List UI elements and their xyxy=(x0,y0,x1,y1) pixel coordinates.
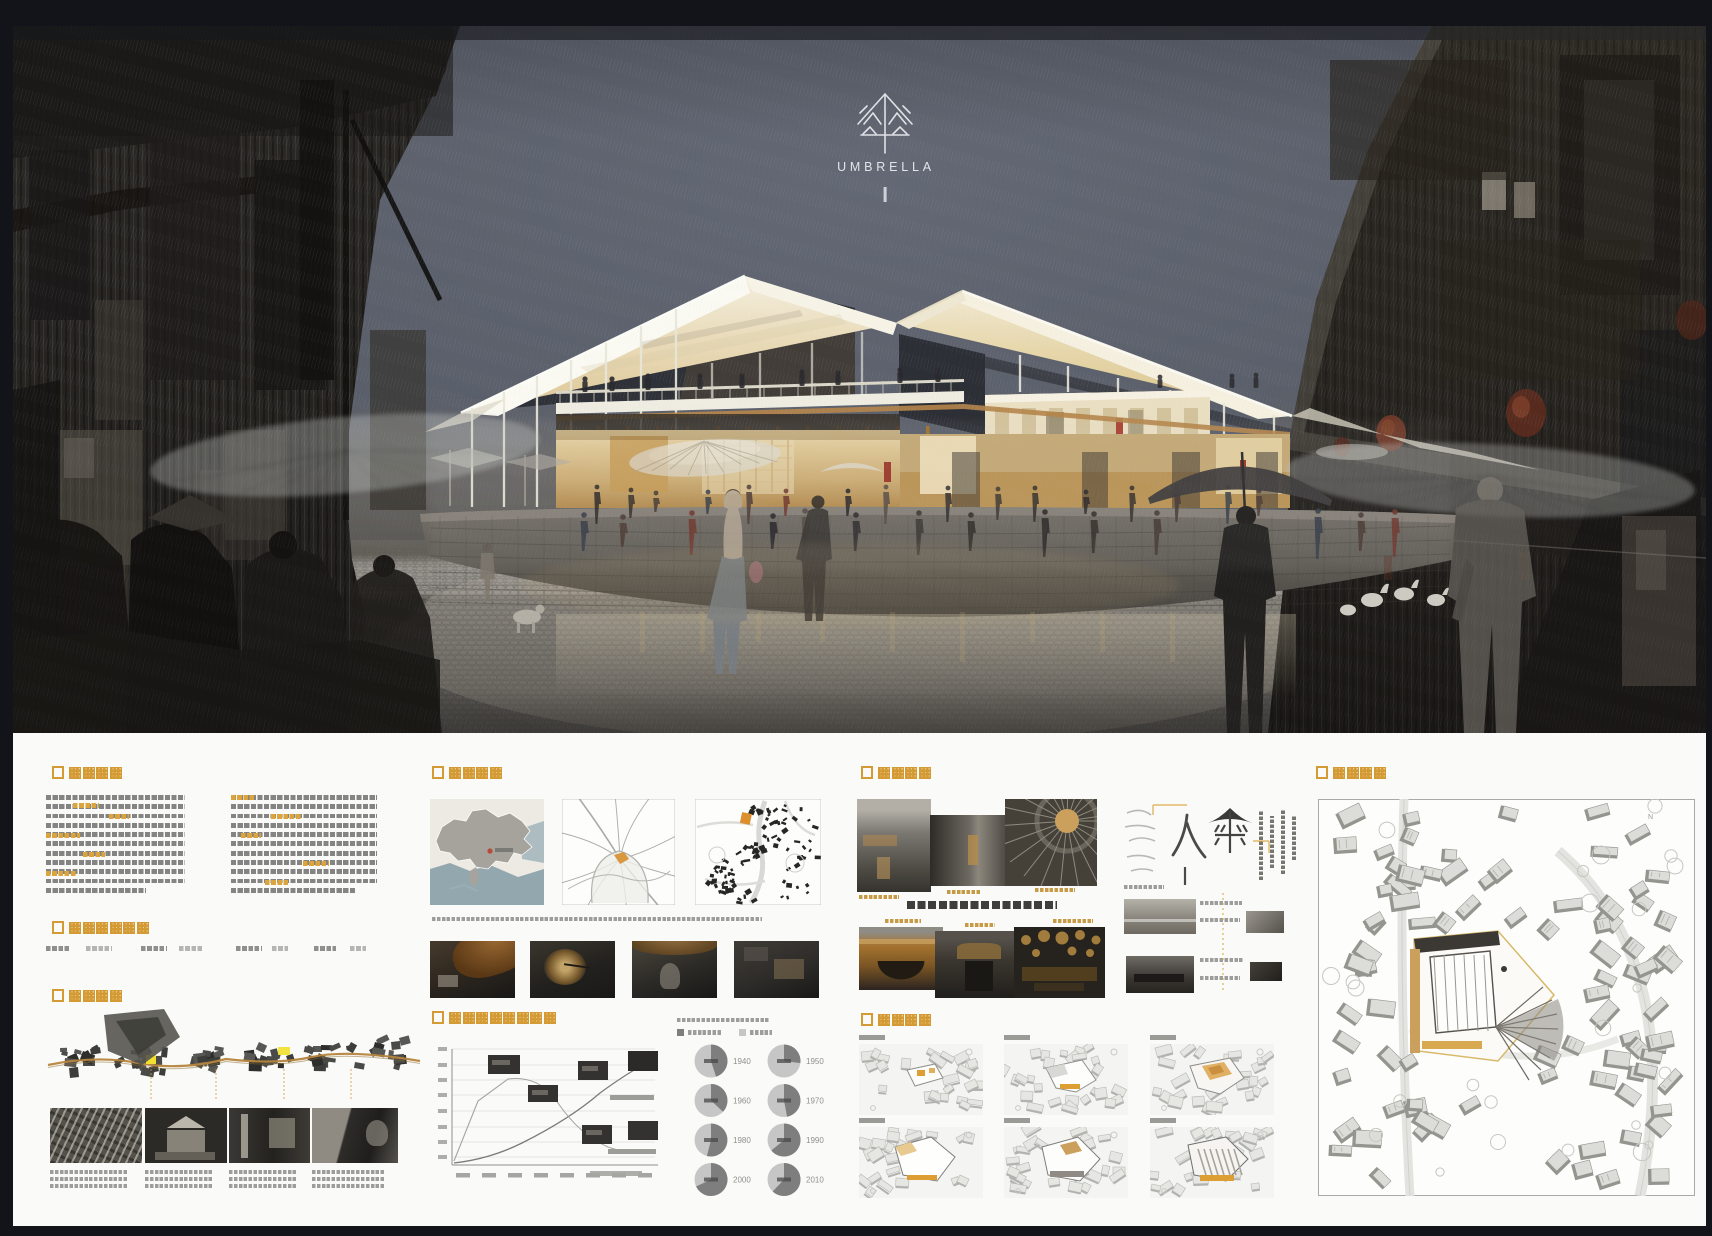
svg-text:1950: 1950 xyxy=(806,1057,824,1066)
svg-text:2000: 2000 xyxy=(733,1176,751,1185)
svg-text:1970: 1970 xyxy=(806,1097,824,1106)
svg-text:1940: 1940 xyxy=(733,1057,751,1066)
svg-text:2010: 2010 xyxy=(806,1176,824,1185)
svg-text:1990: 1990 xyxy=(806,1136,824,1145)
svg-text:1960: 1960 xyxy=(733,1097,751,1106)
svg-text:N: N xyxy=(1648,814,1653,821)
svg-text:UMBRELLA: UMBRELLA xyxy=(837,160,935,174)
svg-text:1980: 1980 xyxy=(733,1136,751,1145)
